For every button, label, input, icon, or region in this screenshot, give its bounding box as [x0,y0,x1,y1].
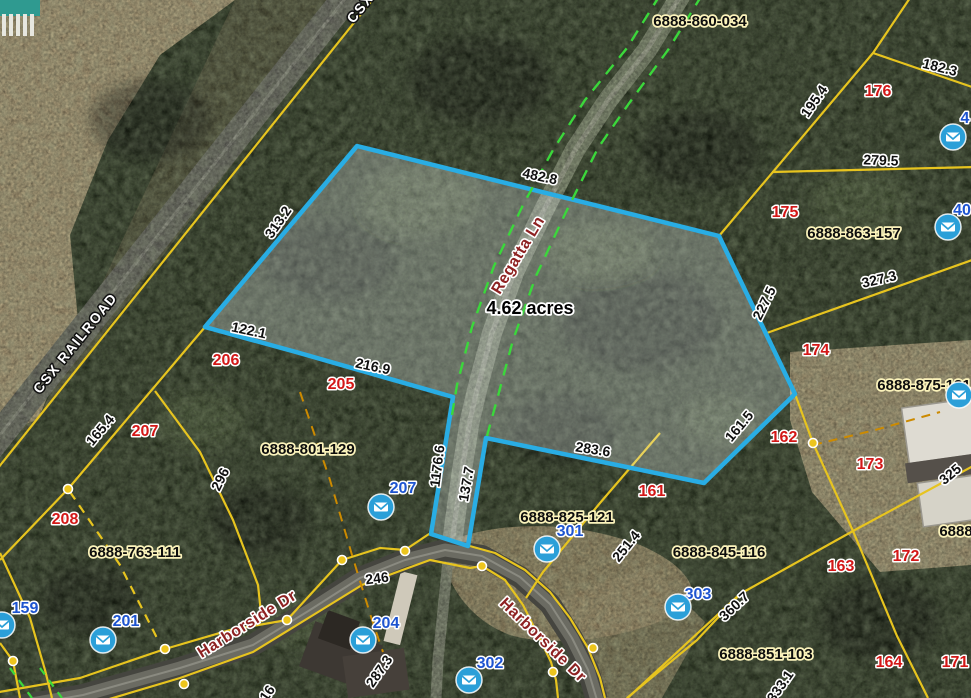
boundary-vertex-dot [9,657,18,666]
lot-number-red: 206 [213,352,240,369]
lot-number-red: 164 [876,654,903,671]
lot-number-blue: 204 [373,615,400,632]
lot-number-red: 175 [772,204,799,221]
lot-number-blue: 207 [390,480,417,497]
lot-number-red: 162 [771,429,798,446]
lot-number-red: 207 [132,423,159,440]
mail-icon[interactable] [456,667,482,693]
mail-icon[interactable] [940,124,966,150]
mail-icon[interactable] [935,214,961,240]
lot-number-red: 161 [639,483,666,500]
lot-number-red: 171 [942,654,969,671]
mail-icon[interactable] [368,494,394,520]
lot-number-red: 163 [828,558,855,575]
mail-icon[interactable] [90,627,116,653]
boundary-vertex-dot [401,547,410,556]
boundary-vertex-dot [338,556,347,565]
lot-number-red: 172 [893,548,920,565]
boundary-vertex-dot [589,644,598,653]
lot-number-blue: 159 [12,600,39,617]
parcel-id-label: 6888-845-116 [673,544,766,561]
boundary-vertex-dot [180,680,189,689]
parcel-id-label: 6888-851-103 [719,646,812,663]
parcel-id-label: 6888-763-111 [89,544,181,561]
dimension-label: 246 [364,569,389,588]
mail-icon[interactable] [665,594,691,620]
parcel-id-label: 6888 [939,523,971,540]
lot-number-red: 173 [857,456,884,473]
parcel-id-label: 6888-801-129 [261,441,354,458]
lot-number-blue: 302 [477,655,504,672]
lot-number-blue: 301 [557,523,584,540]
boundary-vertex-dot [549,668,558,677]
lot-number-red: 176 [865,83,892,100]
boat-dock-building [0,0,40,36]
boundary-vertex-dot [283,616,292,625]
mail-icon[interactable] [534,536,560,562]
parcel-id-label: 6888-863-157 [807,225,900,242]
mail-icon[interactable] [946,382,971,408]
lot-number-red: 174 [803,342,830,359]
mail-icon[interactable] [350,627,376,653]
lot-number-red: 208 [52,511,79,528]
parcel-acreage-label: 4.62 acres [486,298,573,318]
lot-number-blue: 4 [961,110,970,127]
parcel-id-label: 6888-860-034 [653,13,747,30]
boundary-vertex-dot [64,485,73,494]
boundary-vertex-dot [161,645,170,654]
lot-number-red: 205 [328,376,355,393]
boundary-vertex-dot [809,439,818,448]
boundary-vertex-dot [478,562,487,571]
parcel-map-canvas[interactable]: 482.8313.2122.1216.91176.6137.7283.6161.… [0,0,971,698]
dimension-label: 279.5 [863,151,899,168]
lot-number-blue: 201 [113,613,140,630]
